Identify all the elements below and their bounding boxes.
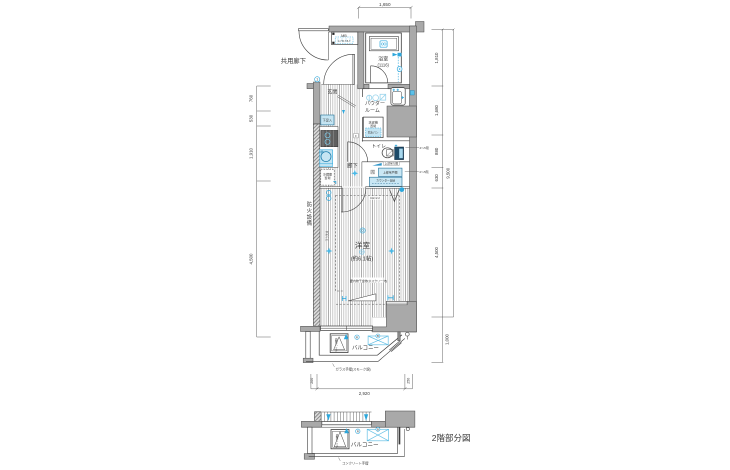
svg-text:置場: 置場 <box>324 175 330 180</box>
svg-text:880: 880 <box>434 147 439 155</box>
svg-text:1,000: 1,000 <box>445 333 450 345</box>
svg-text:丙: 丙 <box>371 170 374 174</box>
svg-text:避難ハッチ: 避難ハッチ <box>336 434 339 449</box>
svg-text:4,500: 4,500 <box>249 253 254 265</box>
svg-text:4〜5階: 4〜5階 <box>419 169 428 174</box>
svg-text:530: 530 <box>249 114 254 122</box>
svg-text:ガラス手摺(スモーク調): ガラス手摺(スモーク調) <box>336 366 371 371</box>
svg-text:CH=2.2: CH=2.2 <box>370 196 380 200</box>
svg-text:F: F <box>355 134 357 138</box>
svg-text:2階部分図: 2階部分図 <box>432 433 471 443</box>
svg-text:防水パン: 防水パン <box>368 131 379 135</box>
svg-text:上部吊り棚: 上部吊り棚 <box>385 162 399 166</box>
svg-text:室内物干金物(ホスクリーン): 室内物干金物(ホスクリーン) <box>350 278 387 283</box>
svg-text:(1116): (1116) <box>377 62 389 67</box>
svg-text:1,910: 1,910 <box>249 147 254 159</box>
svg-text:2,920: 2,920 <box>359 391 371 396</box>
svg-text:ルーム: ルーム <box>365 108 380 114</box>
svg-text:バルコニー: バルコニー <box>351 442 379 449</box>
svg-text:パウダー: パウダー <box>365 100 385 107</box>
svg-text:カウンター収納: カウンター収納 <box>376 178 395 182</box>
svg-text:4〜5階: 4〜5階 <box>420 145 429 150</box>
svg-text:MB: MB <box>341 34 347 38</box>
svg-text:9,500: 9,500 <box>445 167 450 179</box>
svg-text:コンクリート手摺: コンクリート手摺 <box>342 461 369 466</box>
svg-text:上部吊戸棚: 上部吊戸棚 <box>383 170 398 175</box>
svg-text:630: 630 <box>434 174 439 182</box>
svg-text:250: 250 <box>407 378 411 384</box>
svg-text:760: 760 <box>249 94 254 102</box>
svg-text:防火設備: 防火設備 <box>307 201 313 228</box>
svg-text:下足入: 下足入 <box>323 118 333 122</box>
svg-text:B: B <box>377 334 379 338</box>
svg-text:1,680: 1,680 <box>434 104 439 116</box>
svg-text:200: 200 <box>310 378 314 384</box>
svg-text:バルコニー: バルコニー <box>352 345 379 352</box>
svg-text:避難ハッチ: 避難ハッチ <box>335 338 338 353</box>
svg-text:置場: 置場 <box>370 123 376 128</box>
svg-text:4,500: 4,500 <box>434 246 439 258</box>
svg-text:玄関: 玄関 <box>328 88 338 95</box>
svg-text:(約6.1帖): (約6.1帖) <box>351 255 373 263</box>
svg-text:C-7 B-7 B-7: C-7 B-7 B-7 <box>338 40 351 43</box>
svg-text:下り天井: 下り天井 <box>325 230 329 241</box>
svg-text:洋室: 洋室 <box>355 240 371 250</box>
svg-text:B: B <box>377 428 379 432</box>
svg-text:廊下: 廊下 <box>347 161 358 169</box>
svg-text:1,810: 1,810 <box>434 52 439 64</box>
svg-text:1: 1 <box>316 78 318 82</box>
svg-text:共用廊下: 共用廊下 <box>281 56 306 65</box>
svg-text:1,650: 1,650 <box>379 2 391 7</box>
